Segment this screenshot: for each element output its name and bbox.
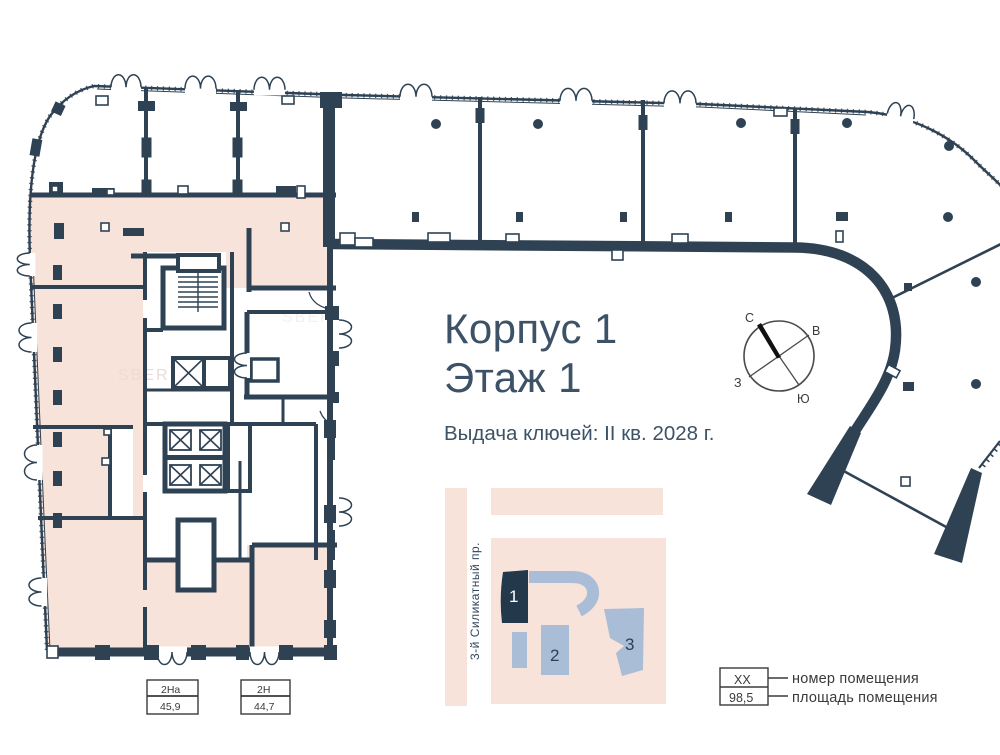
svg-text:2: 2 [550, 646, 559, 665]
svg-text:3-й Силикатный пр.: 3-й Силикатный пр. [468, 542, 482, 660]
svg-text:площадь помещения: площадь помещения [792, 690, 938, 706]
svg-text:45,9: 45,9 [160, 701, 181, 713]
svg-text:2На: 2На [161, 684, 180, 696]
svg-text:44,7: 44,7 [254, 701, 275, 713]
svg-text:Ю: Ю [797, 392, 810, 406]
svg-text:3: 3 [625, 635, 634, 654]
svg-text:номер помещения: номер помещения [792, 671, 919, 687]
svg-text:В: В [812, 324, 820, 338]
svg-text:Корпус 1: Корпус 1 [444, 305, 618, 352]
svg-text:З: З [734, 376, 742, 390]
svg-text:Этаж 1: Этаж 1 [444, 354, 582, 401]
svg-text:1: 1 [509, 587, 518, 606]
svg-text:2Н: 2Н [257, 684, 270, 696]
svg-text:XX: XX [734, 673, 751, 687]
svg-text:Выдача ключей: II кв. 2028 г.: Выдача ключей: II кв. 2028 г. [444, 422, 714, 445]
svg-text:С: С [745, 311, 754, 325]
svg-text:98,5: 98,5 [729, 691, 753, 705]
